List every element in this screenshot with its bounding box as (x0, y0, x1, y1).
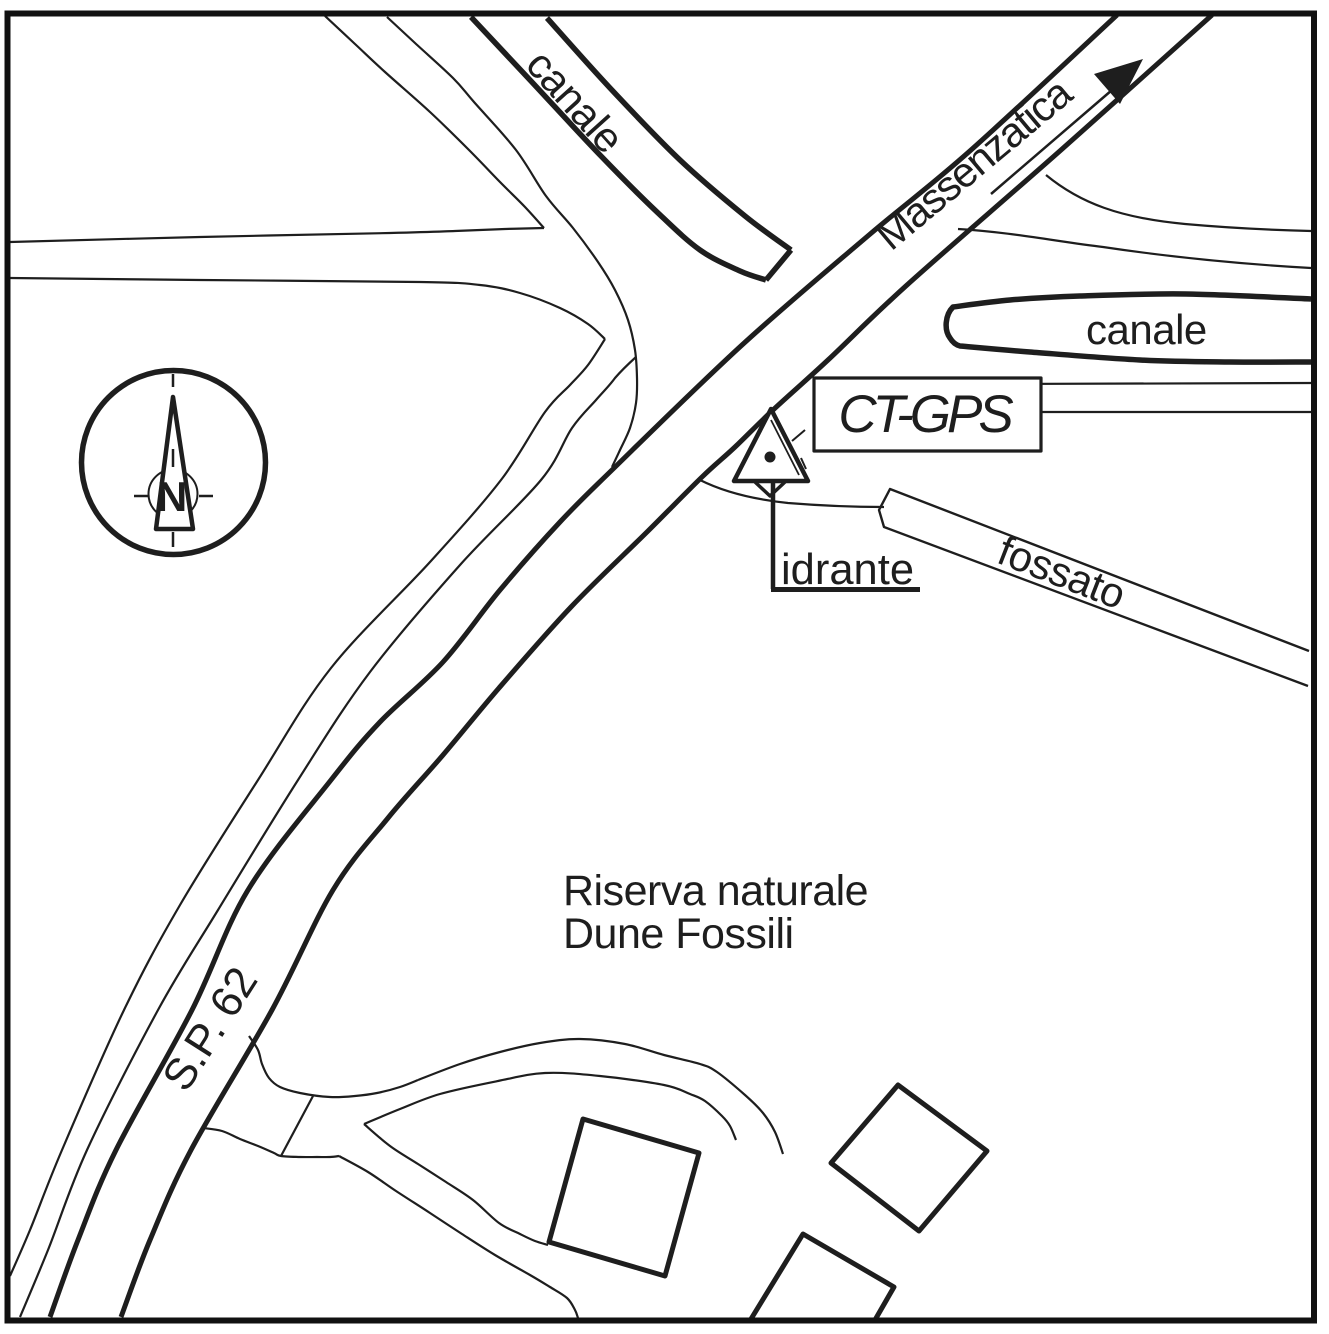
svg-text:Riserva naturale: Riserva naturale (563, 867, 868, 915)
svg-text:idrante: idrante (781, 546, 914, 594)
svg-text:N: N (157, 473, 187, 520)
svg-text:CT-GPS: CT-GPS (838, 385, 1013, 444)
svg-text:canale: canale (1086, 306, 1207, 353)
svg-text:Dune Fossili: Dune Fossili (563, 910, 794, 958)
